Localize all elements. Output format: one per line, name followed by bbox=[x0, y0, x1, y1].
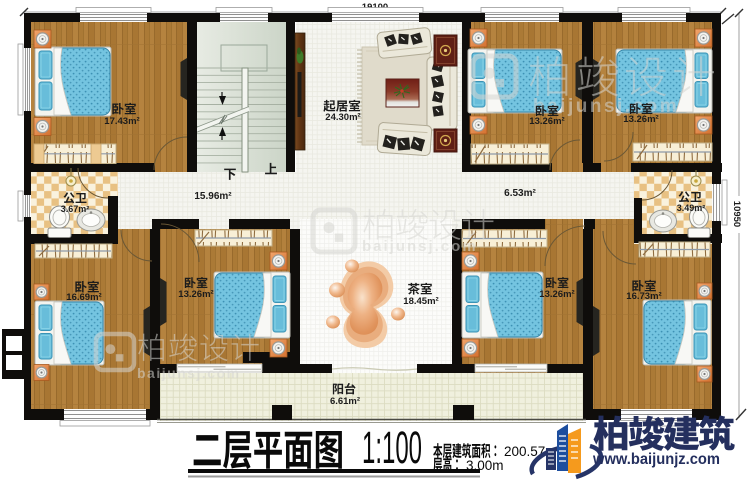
svg-text:16.73m²: 16.73m² bbox=[626, 291, 661, 302]
svg-text:3.49m²: 3.49m² bbox=[677, 203, 706, 213]
svg-text:www.baijunjz.com: www.baijunjz.com bbox=[592, 451, 720, 468]
svg-text:15.96m²: 15.96m² bbox=[194, 191, 232, 202]
svg-text:13.26m²: 13.26m² bbox=[623, 114, 658, 125]
svg-text:3.00m: 3.00m bbox=[466, 458, 504, 473]
svg-text:1:100: 1:100 bbox=[362, 422, 422, 473]
svg-text:13.26m²: 13.26m² bbox=[539, 289, 574, 300]
svg-text:baijunsj.com: baijunsj.com bbox=[137, 365, 241, 381]
svg-text:6.53m²: 6.53m² bbox=[504, 188, 536, 199]
svg-text:16.69m²: 16.69m² bbox=[66, 292, 101, 303]
svg-text:6.61m²: 6.61m² bbox=[330, 396, 360, 407]
svg-text:baijunsj.com: baijunsj.com bbox=[362, 238, 478, 255]
svg-text:13.26m²: 13.26m² bbox=[178, 289, 213, 300]
svg-text:17.43m²: 17.43m² bbox=[104, 116, 139, 127]
svg-text:10950: 10950 bbox=[731, 201, 742, 227]
svg-text:13.26m²: 13.26m² bbox=[529, 116, 564, 127]
svg-text:3.67m²: 3.67m² bbox=[61, 204, 90, 214]
svg-text:18.45m²: 18.45m² bbox=[403, 296, 438, 307]
svg-text:24.30m²: 24.30m² bbox=[325, 112, 360, 123]
